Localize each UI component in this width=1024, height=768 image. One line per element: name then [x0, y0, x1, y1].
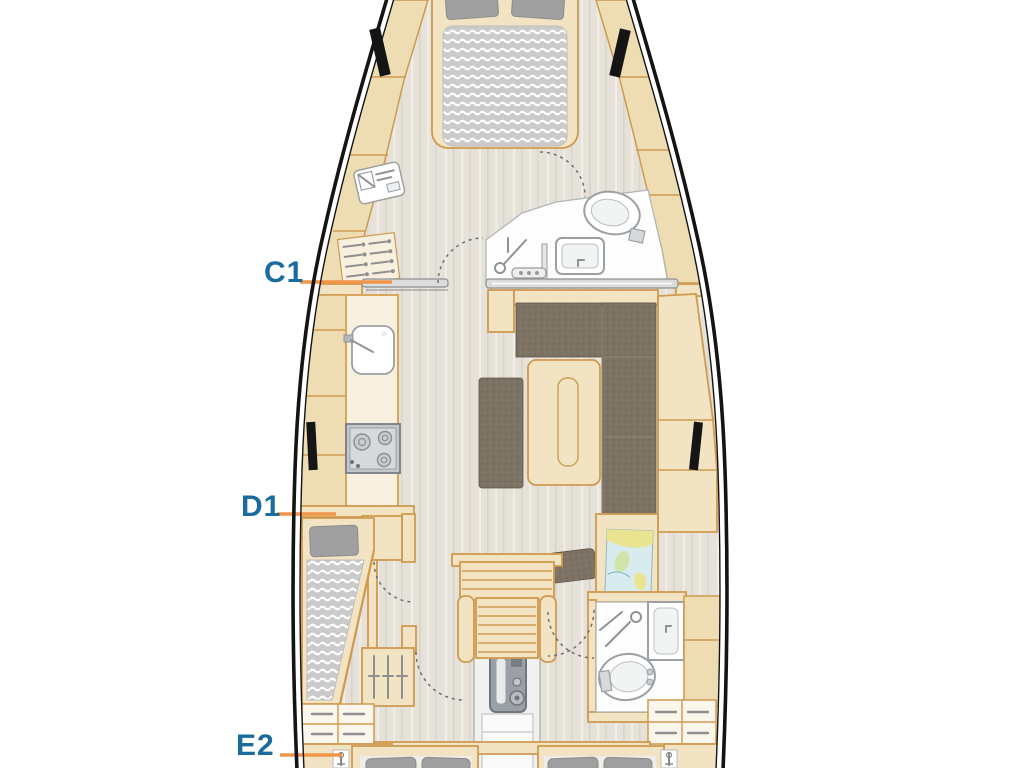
label-d1: D1	[241, 492, 281, 522]
label-e2-text: E2	[236, 729, 275, 762]
chart-map	[605, 529, 653, 597]
mid-wardrobe	[362, 648, 414, 706]
stern-post-port	[333, 750, 349, 768]
salon-table	[528, 360, 600, 485]
galley	[300, 295, 400, 512]
aft-berth-port	[352, 746, 478, 768]
sofa-seat-right	[602, 303, 656, 524]
yacht-layout-page: C1 D1 E2	[0, 0, 1024, 768]
label-e2: E2	[236, 731, 275, 761]
forward-berth-mattress	[443, 26, 567, 146]
label-c1: C1	[264, 258, 304, 288]
hanger-icons-vertical	[369, 656, 407, 698]
companionway-stairs	[458, 562, 556, 662]
stern-post-starboard	[661, 750, 677, 768]
port-aft-drawers	[302, 704, 374, 744]
starboard-aft-drawers	[648, 700, 716, 744]
aft-berth-starboard	[538, 746, 664, 768]
label-c1-text: C1	[264, 256, 304, 289]
salon-ottoman	[479, 378, 523, 488]
label-d1-text: D1	[241, 490, 281, 523]
forward-berth	[432, 0, 578, 148]
yacht-floorplan	[0, 0, 1024, 768]
single-berth-pillow	[309, 525, 358, 557]
galley-sink	[344, 326, 394, 374]
bulkhead-sill-port	[300, 284, 362, 295]
engine	[490, 650, 526, 712]
forward-sink	[556, 238, 604, 274]
aft-sink	[648, 602, 684, 660]
forward-wardrobe	[338, 233, 400, 286]
galley-stove	[346, 424, 400, 473]
